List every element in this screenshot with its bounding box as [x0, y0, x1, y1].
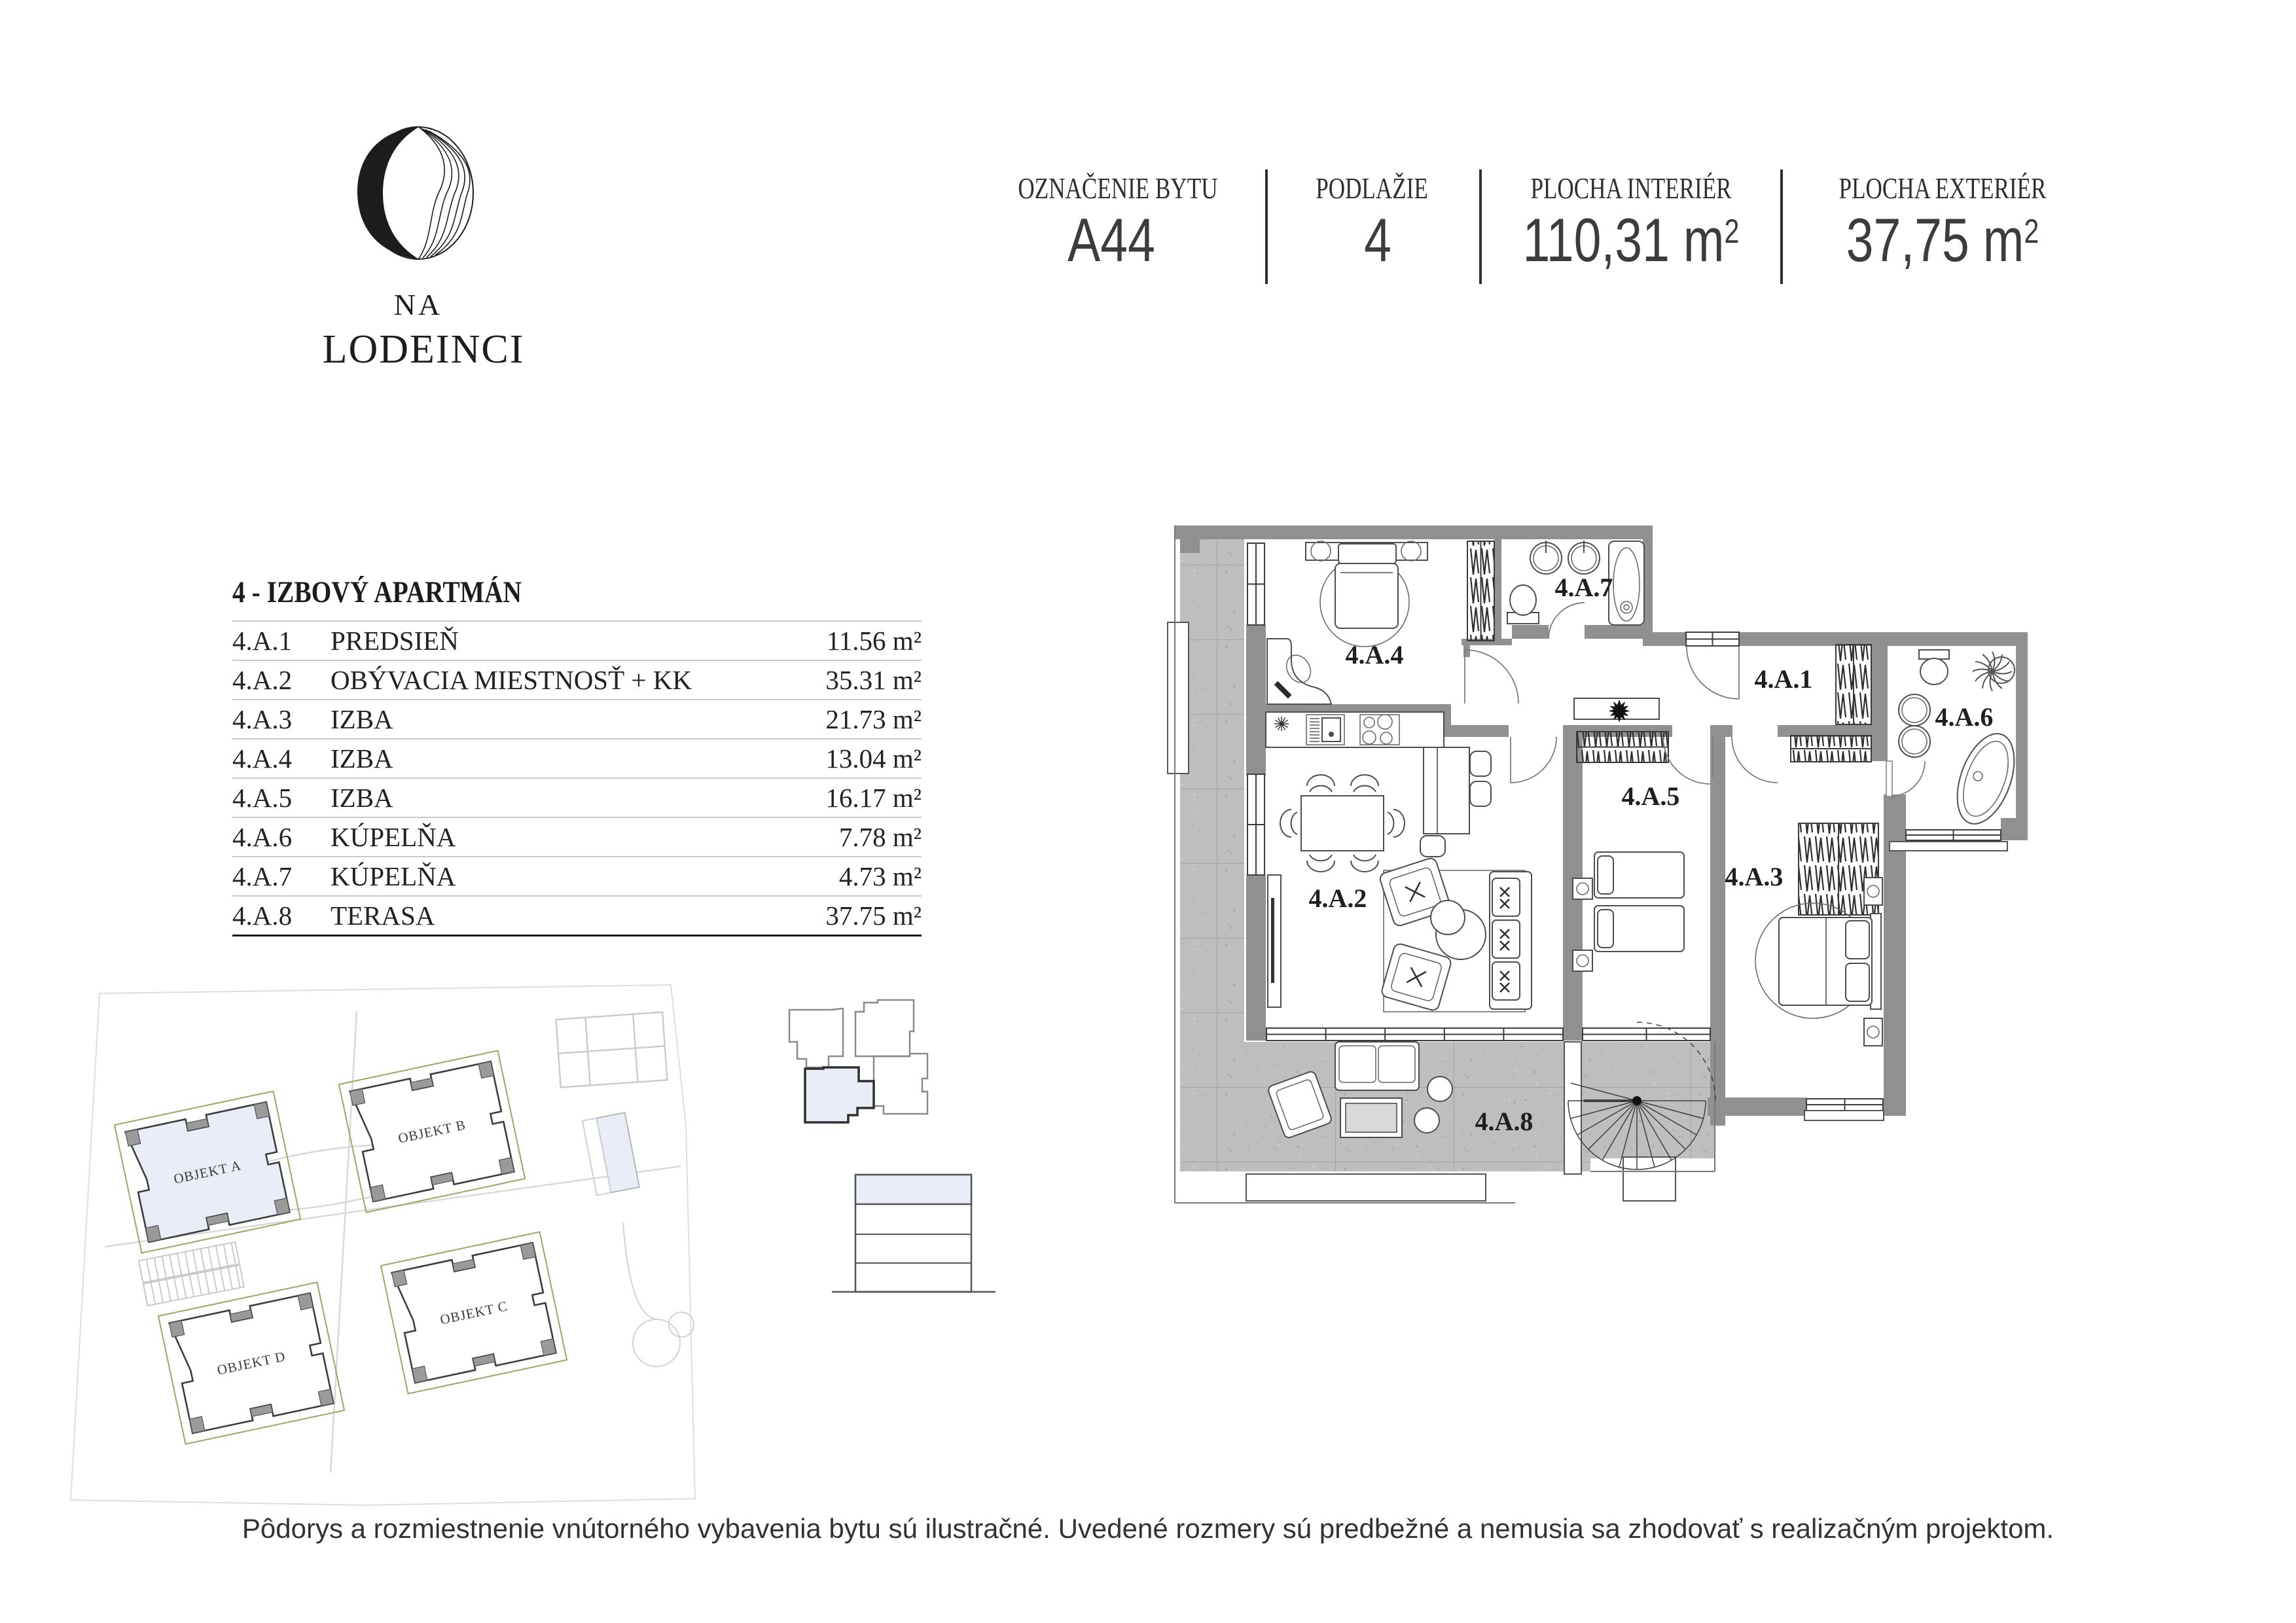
svg-text:4.A.7: 4.A.7 — [1555, 573, 1613, 602]
svg-text:4.A.6: 4.A.6 — [1935, 702, 1994, 732]
svg-text:4.A.4: 4.A.4 — [1346, 640, 1404, 669]
svg-text:NA: NA — [394, 288, 442, 321]
svg-text:4.A.5: 4.A.5 — [1622, 781, 1680, 811]
svg-text:4.A.3: 4.A.3 — [1725, 862, 1784, 891]
svg-text:4.A.8: 4.A.8 — [1475, 1107, 1534, 1136]
svg-text:4.A.2: 4.A.2 — [1309, 883, 1367, 913]
svg-text:LODEINCI: LODEINCI — [323, 327, 525, 372]
svg-text:4.A.1: 4.A.1 — [1755, 664, 1813, 694]
